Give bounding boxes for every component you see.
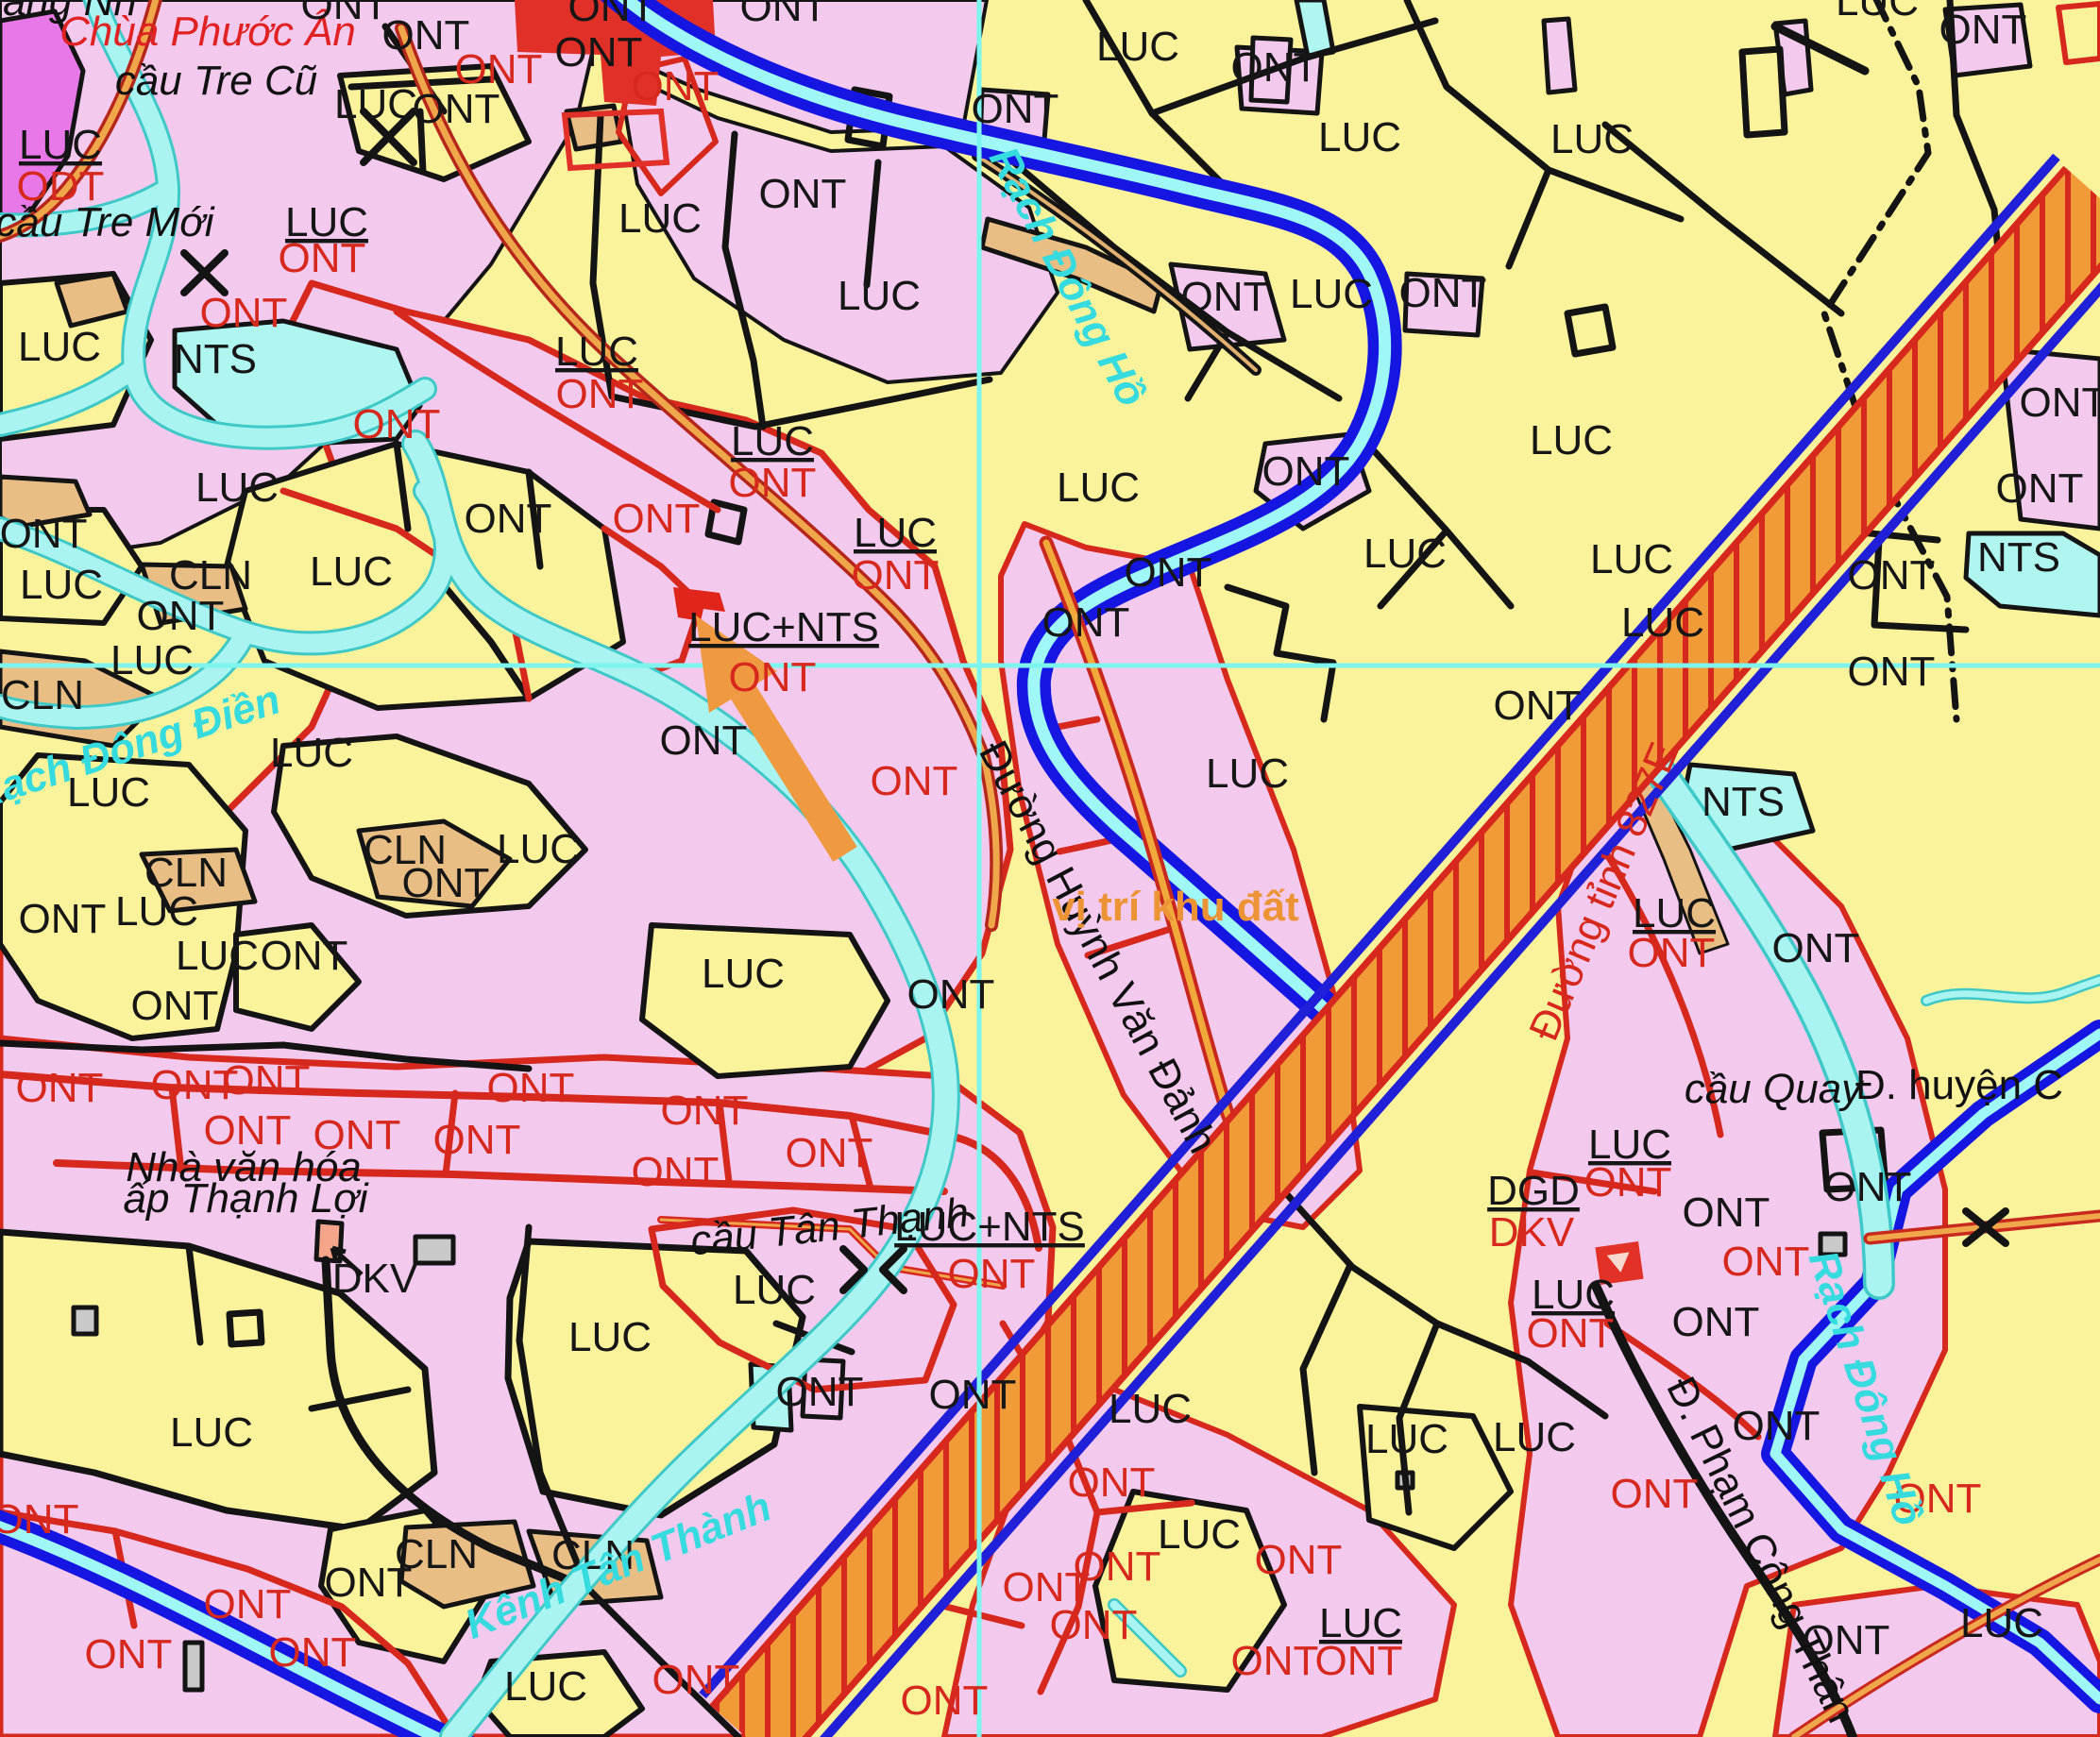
zone-label: LUC+NTS [894,1204,1085,1250]
zone-label: LUC [1836,0,1919,25]
zone-label: LUC [555,329,638,375]
place-label: cầu Tre Mới [0,199,215,245]
zone-label: LUC [504,1663,587,1710]
zone-label: LUC [1290,271,1373,317]
zone-label-red: ONT [1584,1159,1672,1206]
zone-label: ONT [1494,683,1582,729]
zone-label: ONT [0,511,87,557]
zone-label-red: ONT [279,235,366,281]
zone-label: LUC [838,273,921,319]
zone-label: ONT [402,860,490,906]
zone-label: LUC [170,1409,253,1456]
zone-label: LUC [20,562,103,608]
zone-label: NTS [1702,779,1785,825]
zone-label-red: ONT [353,401,441,447]
zone-label: ONT [1181,274,1269,320]
zone-label-red: ONT [1527,1310,1615,1357]
zone-label: ONT [19,896,107,942]
zone-label-red: ONT [948,1251,1036,1297]
zone-label: LUC [1493,1414,1576,1460]
zone-label-red: ONT [16,1065,104,1111]
place-label: ấp Thạnh Lợi [124,1175,369,1222]
zone-label: ONT [1262,448,1350,495]
zone-label-red: ONT [223,1057,311,1104]
zone-label: LUC [1365,1416,1448,1462]
zone-label: LUC [497,826,580,872]
zone-label: LUC [1057,464,1140,511]
zone-label: NTS [174,336,257,382]
zone-label-red: ONT [1315,1638,1403,1684]
zone-label-red: ONT [85,1631,173,1678]
zone-label: ONT [1939,7,2027,53]
zone-label: LUC [1363,531,1447,577]
zone-label: LUC [568,1314,652,1360]
zone-label: LUC [310,548,393,595]
zone-label: ONT [660,717,748,764]
zone-label-red: ONT [1628,930,1716,976]
zone-label-red: ONT [1255,1537,1343,1583]
site-location-annotation: vị trí khu đất [1052,884,1299,930]
zone-label: ONT [137,593,225,639]
zone-label: ONT [1996,465,2084,512]
zone-label: LUC [1590,536,1673,582]
zone-label: LUC [618,195,702,242]
zone-label: LUC [1530,417,1613,464]
zone-label: ONT [325,1560,413,1606]
zone-label: LUC [195,464,279,511]
zone-label: LUC [731,418,814,464]
zone-label-red: ONT [487,1065,575,1111]
planning-map[interactable]: Hàng NhChùa Phước Âncầu Tre CũLUCODTcầu … [0,0,2100,1737]
zone-label: ONT [1672,1299,1760,1345]
zone-label-red: ONT [901,1678,989,1724]
zone-label: ONT [1231,44,1319,91]
zone-label-red: ONT [1611,1471,1699,1517]
zone-label-red: ONT [455,46,543,93]
zone-label: CLN [1,672,84,718]
zone-label: ONT [1733,1403,1821,1449]
place-label: cầu Tre Cũ [115,58,317,104]
zone-label-red: ONT [652,1657,740,1703]
zone-label: LUC [270,730,353,776]
zone-label: ONT [2020,379,2100,426]
zone-label: ONT [1848,552,1936,599]
zone-label-red: ONT [1722,1239,1810,1285]
zone-label-red: ONT [433,1117,521,1163]
zone-label: ONT [1042,599,1130,646]
zone-label: ONT [1848,649,1936,695]
zone-label-red: ONT [269,1629,357,1676]
zone-label-red: ONT [200,290,288,336]
zone-label: ONT [907,971,995,1018]
zone-label-red: ONT [204,1581,292,1627]
zone-label: CLN [169,552,252,599]
zone-label: LUC [176,933,259,979]
zone-label: LUC [702,951,785,997]
zone-label: LUC [19,122,102,168]
zone-label: ONT [759,171,847,217]
zone-label: ONT [261,933,348,979]
zone-label: ONT [568,0,656,30]
zone-label: LUC [1158,1511,1241,1558]
zone-label-red: ONT [1231,1638,1319,1684]
zone-label: ONT [555,29,643,76]
zone-label-red: ONT [729,460,817,506]
zone-label: LUC [334,81,417,127]
zone-label: LUC [18,324,101,370]
zone-label: LUC+NTS [688,604,879,650]
zone-label-red: ONT [661,1088,749,1134]
zone-label: NTS [1977,534,2060,581]
zone-label: LUC [1960,1600,2043,1646]
zone-label: ONT [1683,1189,1770,1236]
zone-label-red: ONT [729,654,817,700]
zone-label-red: ONT [786,1130,873,1176]
zone-label: LUC [1109,1386,1192,1432]
zone-label: LUC [110,637,194,683]
map-canvas[interactable]: Hàng NhChùa Phước Âncầu Tre CũLUCODTcầu … [0,0,2100,1737]
zone-label: ONT [301,0,389,28]
zone-label: LUC [733,1267,816,1313]
road-label: Đ. huyện C [1855,1062,2063,1108]
zone-label: ONT [776,1369,864,1415]
zone-label-red: ONT [613,496,701,542]
zone-label: ONT [413,86,500,132]
zone-label: LUC [1550,116,1634,162]
zone-label: LUC [1206,750,1289,797]
zone-label: LUC [1318,114,1401,160]
zone-label-red: DKV [1489,1209,1575,1256]
zone-label: LUC [1621,599,1704,646]
zone-label: ONT [1772,925,1860,971]
zone-label: LUC [854,510,937,556]
zone-label: LUC [1096,24,1179,70]
zone-label-red: ONT [556,371,644,417]
zone-label-red: ONT [1068,1459,1156,1506]
zone-label-red: ONT [632,63,720,110]
place-label: cầu Quay [1685,1066,1865,1112]
zone-label-red: ONT [852,552,940,599]
zone-label: ONT [131,983,219,1029]
zone-label: ONT [929,1372,1017,1418]
zone-label: ONT [1399,270,1487,316]
zone-label: DGD [1487,1168,1580,1214]
zone-label: ONT [1125,549,1212,596]
zone-label: ONT [740,0,828,30]
zone-label: ONT [972,86,1059,132]
zone-label: ONT [1824,1164,1912,1210]
zone-label-red: ONT [871,758,958,804]
zone-label: LUC [115,888,198,935]
zone-label-red: ONT [0,1496,78,1543]
zone-label-red: ONT [1050,1602,1138,1648]
zone-label: DKV [332,1256,418,1302]
zone-label-red: ONT [632,1149,720,1195]
zone-label: ONT [465,496,552,542]
